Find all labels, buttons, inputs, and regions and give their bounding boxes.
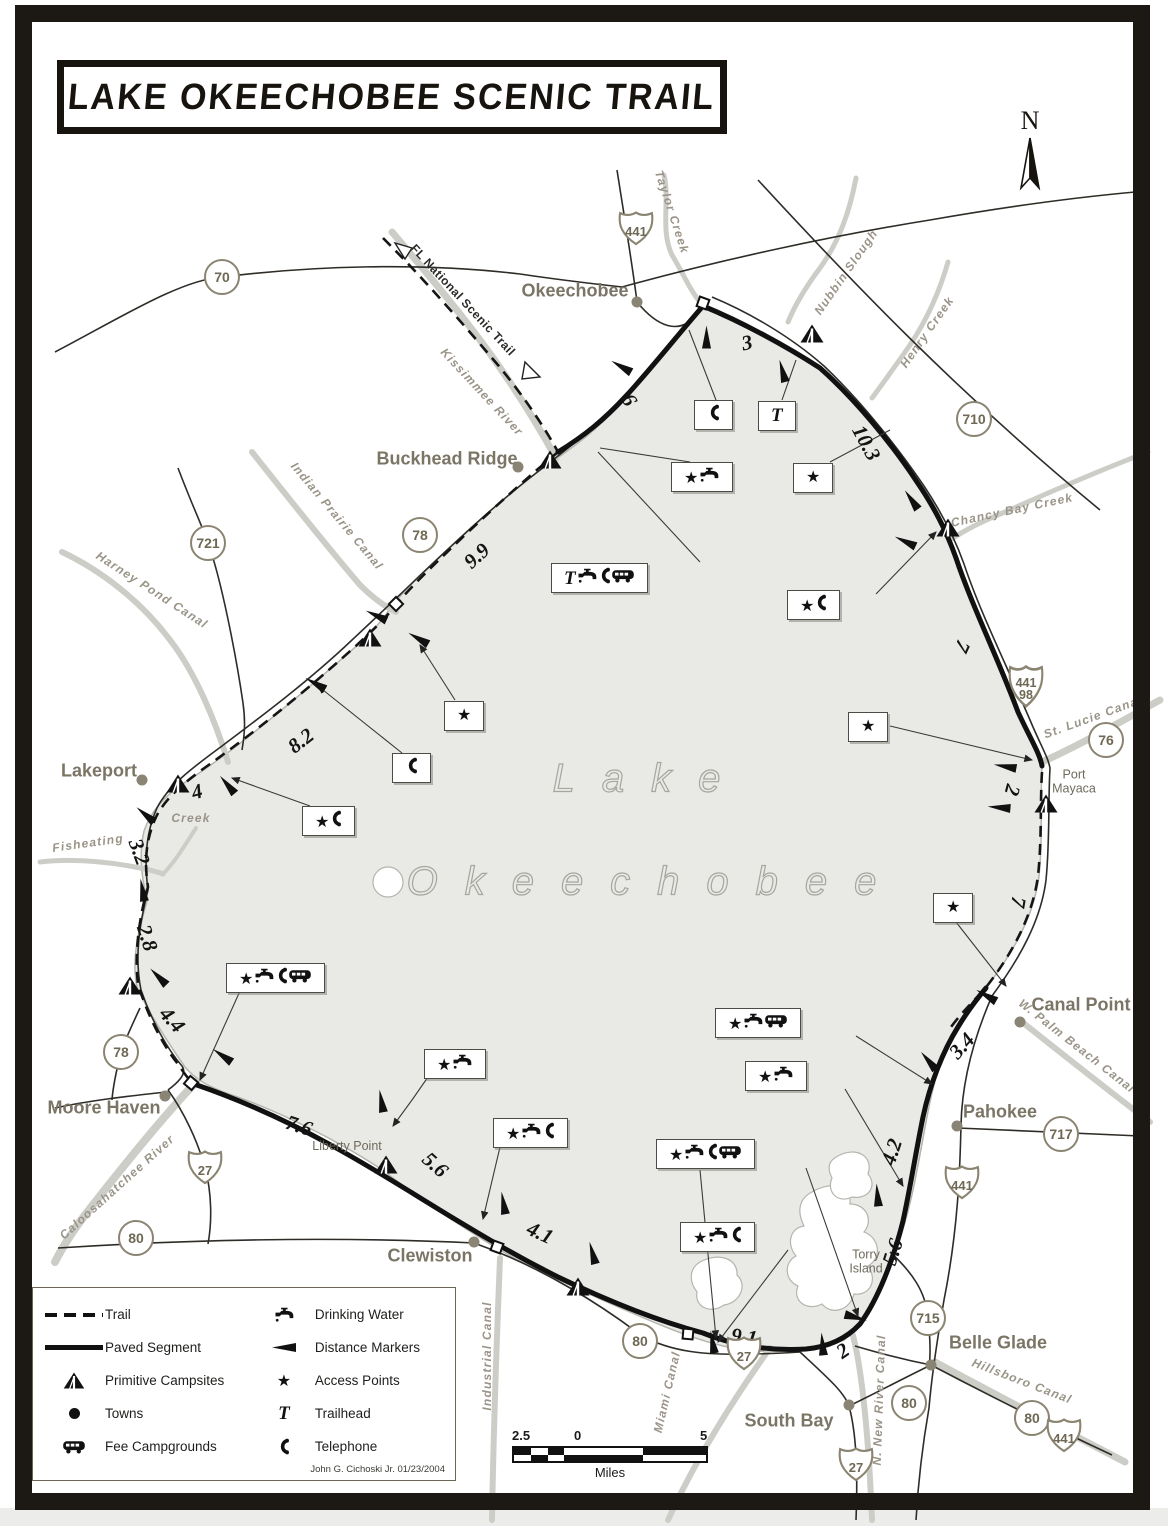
legend-icon: [253, 1438, 315, 1455]
route-number: 80: [128, 1230, 144, 1246]
legend-icon: [43, 1345, 105, 1350]
map-page: LAKE OKEECHOBEE SCENIC TRAIL N Lake Okee…: [0, 0, 1168, 1526]
fee-icon: [764, 1012, 788, 1029]
amenity-icons: ★: [861, 718, 875, 736]
star-icon: ★: [693, 1230, 707, 1246]
legend-icon: [43, 1408, 105, 1419]
fee-icon: [718, 1143, 742, 1160]
star-icon: ★: [437, 1057, 451, 1073]
us-route-shield: 27: [724, 1334, 764, 1372]
star-icon: ★: [728, 1016, 742, 1032]
legend-label: Towns: [105, 1406, 143, 1421]
circle-route-shield: 721: [190, 525, 226, 561]
star-icon: ★: [946, 899, 960, 915]
amenity-box: ★: [793, 463, 833, 493]
town-label: Clewiston: [387, 1246, 472, 1267]
circle-route-shield: 715: [910, 1300, 946, 1336]
phone-icon: [275, 967, 288, 984]
amenity-box: ★: [302, 806, 355, 836]
star-icon: ★: [684, 470, 698, 486]
legend-label: Trailhead: [315, 1406, 371, 1421]
town-dot: [952, 1121, 963, 1132]
distance-marker-icon: [992, 756, 1018, 778]
circle-route-shield: 80: [891, 1385, 927, 1421]
route-number: 78: [412, 527, 428, 543]
north-label: N: [1002, 108, 1058, 134]
legend-right-column: Drinking Water Distance Markers ★ Access…: [253, 1298, 447, 1463]
amenity-icons: ★: [946, 899, 960, 917]
amenity-icons: [405, 757, 418, 779]
legend-row: Towns: [43, 1397, 253, 1430]
town-label: Buckhead Ridge: [376, 449, 517, 470]
route-number: 710: [962, 411, 985, 427]
amenity-box: ★: [787, 590, 840, 620]
town-label: Lakeport: [61, 761, 137, 782]
circle-route-shield: 717: [1043, 1116, 1079, 1152]
paved-icon: [45, 1345, 103, 1350]
legend-row: Primitive Campsites: [43, 1364, 253, 1397]
legend-row: Telephone: [253, 1430, 447, 1463]
route-number: 80: [901, 1395, 917, 1411]
town-dot: [1015, 1017, 1026, 1028]
legend-row: T Trailhead: [253, 1397, 447, 1430]
circle-route-shield: 710: [956, 401, 992, 437]
route-number: 80: [1024, 1410, 1040, 1426]
scale-bar-graphic: [512, 1446, 708, 1463]
route-number: 27: [724, 1337, 764, 1375]
phone-icon: [729, 1226, 742, 1243]
route-number: 441: [942, 1166, 982, 1204]
water-label: Creek: [171, 811, 210, 825]
amenity-icons: ★: [728, 1012, 788, 1034]
campsite-icon: [566, 1277, 590, 1301]
legend-icon: ★: [253, 1373, 315, 1389]
legend-label: Distance Markers: [315, 1340, 420, 1355]
phone-icon: [542, 1122, 555, 1139]
trailhead-icon: T: [564, 569, 576, 588]
lake-name-line2: Okeechobee: [407, 860, 904, 905]
campsite-icon: [936, 518, 960, 542]
circle-route-shield: 76: [1088, 722, 1124, 758]
distance-marker-icon: [492, 1190, 514, 1216]
scale-bar: 2.5 0 5 Miles: [512, 1428, 712, 1480]
legend-left-column: Trail Paved Segment Primitive Campsites …: [43, 1298, 253, 1463]
town-dot: [844, 1400, 855, 1411]
legend-row: Distance Markers: [253, 1331, 447, 1364]
route-number: 717: [1049, 1126, 1072, 1142]
star-icon: ★: [506, 1126, 520, 1142]
star-icon: ★: [315, 814, 329, 830]
legend-icon: [43, 1372, 105, 1389]
fee-icon: [62, 1438, 86, 1455]
star-icon: ★: [806, 469, 820, 485]
place-label: Port Mayaca: [1052, 768, 1096, 797]
us-route-shield: 27: [185, 1148, 225, 1186]
town-label: South Bay: [744, 1411, 833, 1432]
circle-route-shield: 78: [402, 517, 438, 553]
legend-label: Access Points: [315, 1373, 400, 1388]
amenity-box: [392, 753, 431, 783]
distance-marker-icon: [370, 1088, 392, 1114]
map-title-box: LAKE OKEECHOBEE SCENIC TRAIL: [57, 60, 727, 134]
amenity-box: ★: [848, 712, 888, 742]
route-number: 78: [113, 1044, 129, 1060]
legend-label: Trail: [105, 1307, 131, 1322]
route-number: 80: [632, 1333, 648, 1349]
circle-route-shield: 80: [622, 1323, 658, 1359]
circle-route-shield: 70: [204, 259, 240, 295]
legend-icon: [43, 1313, 105, 1317]
star-icon: ★: [277, 1373, 291, 1389]
legend-label: Telephone: [315, 1439, 377, 1454]
amenity-box: ★: [424, 1049, 486, 1079]
legend-row: ★ Access Points: [253, 1364, 447, 1397]
fee-icon: [288, 967, 312, 984]
route-number: 70: [214, 269, 230, 285]
water-icon: [772, 1065, 794, 1082]
amenity-box: ★: [444, 701, 484, 731]
tent-icon: [63, 1372, 85, 1389]
water-icon: [520, 1122, 542, 1139]
amenity-icons: ★: [315, 810, 342, 832]
credit-text: John G. Cichoski Jr. 01/23/2004: [310, 1464, 445, 1475]
town-dot: [469, 1237, 480, 1248]
phone-icon: [705, 1143, 718, 1160]
distance-marker-icon: [812, 1332, 832, 1356]
town-label: Belle Glade: [949, 1333, 1047, 1354]
phone-icon: [329, 810, 342, 827]
route-number: 27: [836, 1448, 876, 1486]
amenity-icons: ★: [669, 1143, 742, 1165]
circle-route-shield: 78: [103, 1034, 139, 1070]
water-icon: [253, 967, 275, 984]
campsite-icon: [166, 774, 190, 798]
distance-marker-icon: [867, 1183, 887, 1207]
legend-icon: [43, 1438, 105, 1455]
campsite-icon: [800, 324, 824, 348]
route-number: 441: [616, 212, 656, 250]
amenity-box: ★: [680, 1222, 755, 1252]
us-route-shield: 441: [616, 209, 656, 247]
amenity-box: ★: [933, 893, 973, 923]
distance-marker-icon: [131, 877, 153, 903]
scale-label-left: 2.5: [512, 1428, 530, 1443]
star-icon: ★: [239, 971, 253, 987]
legend-row: Trail: [43, 1298, 253, 1331]
town-dot: [137, 775, 148, 786]
amenity-icons: ★: [457, 707, 471, 725]
dot-icon: [69, 1408, 80, 1419]
amenity-box: [694, 400, 733, 430]
star-icon: ★: [457, 707, 471, 723]
star-icon: ★: [758, 1069, 772, 1085]
scale-label-right: 5: [700, 1428, 707, 1443]
us-route-shield: 441 98: [1006, 662, 1046, 710]
us-route-shield: 441: [942, 1163, 982, 1201]
place-label: Torry Island: [849, 1248, 882, 1277]
campsite-icon: [118, 976, 142, 1000]
north-arrow-icon: [1013, 136, 1047, 194]
amenity-icons: ★: [693, 1226, 742, 1248]
north-indicator: N: [1002, 108, 1058, 194]
route-number: 76: [1098, 732, 1114, 748]
town-label: Canal Point: [1031, 995, 1130, 1016]
water-icon: [683, 1143, 705, 1160]
water-icon: [707, 1226, 729, 1243]
fee-icon: [611, 567, 635, 584]
us-route-shield: 27: [836, 1445, 876, 1483]
legend-row: Fee Campgrounds: [43, 1430, 253, 1463]
amenity-icons: ★: [806, 469, 820, 487]
legend-label: Paved Segment: [105, 1340, 201, 1355]
phone-icon: [598, 567, 611, 584]
water-icon: [576, 567, 598, 584]
scale-unit-label: Miles: [512, 1465, 708, 1480]
us-route-shield: 441: [1044, 1416, 1084, 1454]
scale-label-zero: 0: [574, 1428, 581, 1443]
legend-label: Drinking Water: [315, 1307, 404, 1322]
amenity-box: ★: [656, 1139, 755, 1169]
circle-route-shield: 80: [118, 1220, 154, 1256]
trail-dash-icon: [45, 1313, 103, 1317]
town-dot: [513, 462, 524, 473]
legend-label: Fee Campgrounds: [105, 1439, 217, 1454]
amenity-box: T: [551, 563, 648, 593]
water-icon: [451, 1053, 473, 1070]
water-icon: [698, 466, 720, 483]
amenity-icons: ★: [758, 1065, 794, 1087]
amenity-box: ★: [493, 1118, 568, 1148]
trailhead-icon: T: [771, 406, 783, 425]
water-icon: [742, 1012, 764, 1029]
water-icon: [273, 1306, 295, 1323]
star-icon: ★: [861, 718, 875, 734]
phone-icon: [405, 757, 418, 774]
campsite-icon: [538, 450, 562, 474]
legend-row: Drinking Water: [253, 1298, 447, 1331]
amenity-icons: ★: [684, 466, 720, 488]
star-icon: ★: [800, 598, 814, 614]
route-number: 721: [196, 535, 219, 551]
lake-name-line1: Lake: [553, 757, 748, 802]
campsite-icon: [1034, 794, 1058, 818]
legend-icon: [253, 1306, 315, 1323]
amenity-icons: ★: [800, 594, 827, 616]
town-label: Pahokee: [963, 1102, 1037, 1123]
amenity-box: ★: [745, 1061, 807, 1091]
amenity-icons: T: [771, 406, 783, 426]
distance-marker-icon: [987, 798, 1011, 818]
amenity-icons: ★: [437, 1053, 473, 1075]
amenity-box: ★: [671, 462, 733, 492]
route-number: 27: [185, 1151, 225, 1189]
town-dot: [160, 1091, 171, 1102]
legend-icon: T: [253, 1404, 315, 1423]
amenity-box: ★: [715, 1008, 801, 1038]
legend-row: Paved Segment: [43, 1331, 253, 1364]
amenity-box: ★: [226, 963, 325, 993]
distance-marker-icon: [697, 326, 715, 349]
town-label: Okeechobee: [521, 281, 628, 302]
map-title: LAKE OKEECHOBEE SCENIC TRAIL: [67, 76, 718, 118]
amenity-box: T: [758, 401, 796, 431]
legend-label: Primitive Campsites: [105, 1373, 224, 1388]
phone-icon: [814, 594, 827, 611]
amenity-icons: ★: [239, 967, 312, 989]
amenity-icons: T: [564, 567, 635, 589]
legend-icon: [253, 1343, 315, 1352]
route-number: 715: [916, 1310, 939, 1326]
town-dot: [926, 1360, 937, 1371]
campsite-icon: [358, 628, 382, 652]
amenity-icons: [707, 404, 720, 426]
town-label: Moore Haven: [47, 1098, 160, 1119]
trailhead-icon: T: [278, 1404, 290, 1423]
route-number: 441: [1044, 1419, 1084, 1457]
distance-marker-icon: [701, 1329, 723, 1355]
phone-icon: [277, 1438, 290, 1455]
marker-icon: [272, 1343, 296, 1352]
campsite-icon: [374, 1155, 398, 1179]
star-icon: ★: [669, 1147, 683, 1163]
place-label: Liberty Point: [312, 1139, 381, 1153]
amenity-icons: ★: [506, 1122, 555, 1144]
legend-box: Trail Paved Segment Primitive Campsites …: [32, 1287, 456, 1481]
water-label: Industrial Canal: [480, 1301, 494, 1410]
town-dot: [632, 297, 643, 308]
route-number: 441 98: [1006, 665, 1046, 713]
phone-icon: [707, 404, 720, 421]
